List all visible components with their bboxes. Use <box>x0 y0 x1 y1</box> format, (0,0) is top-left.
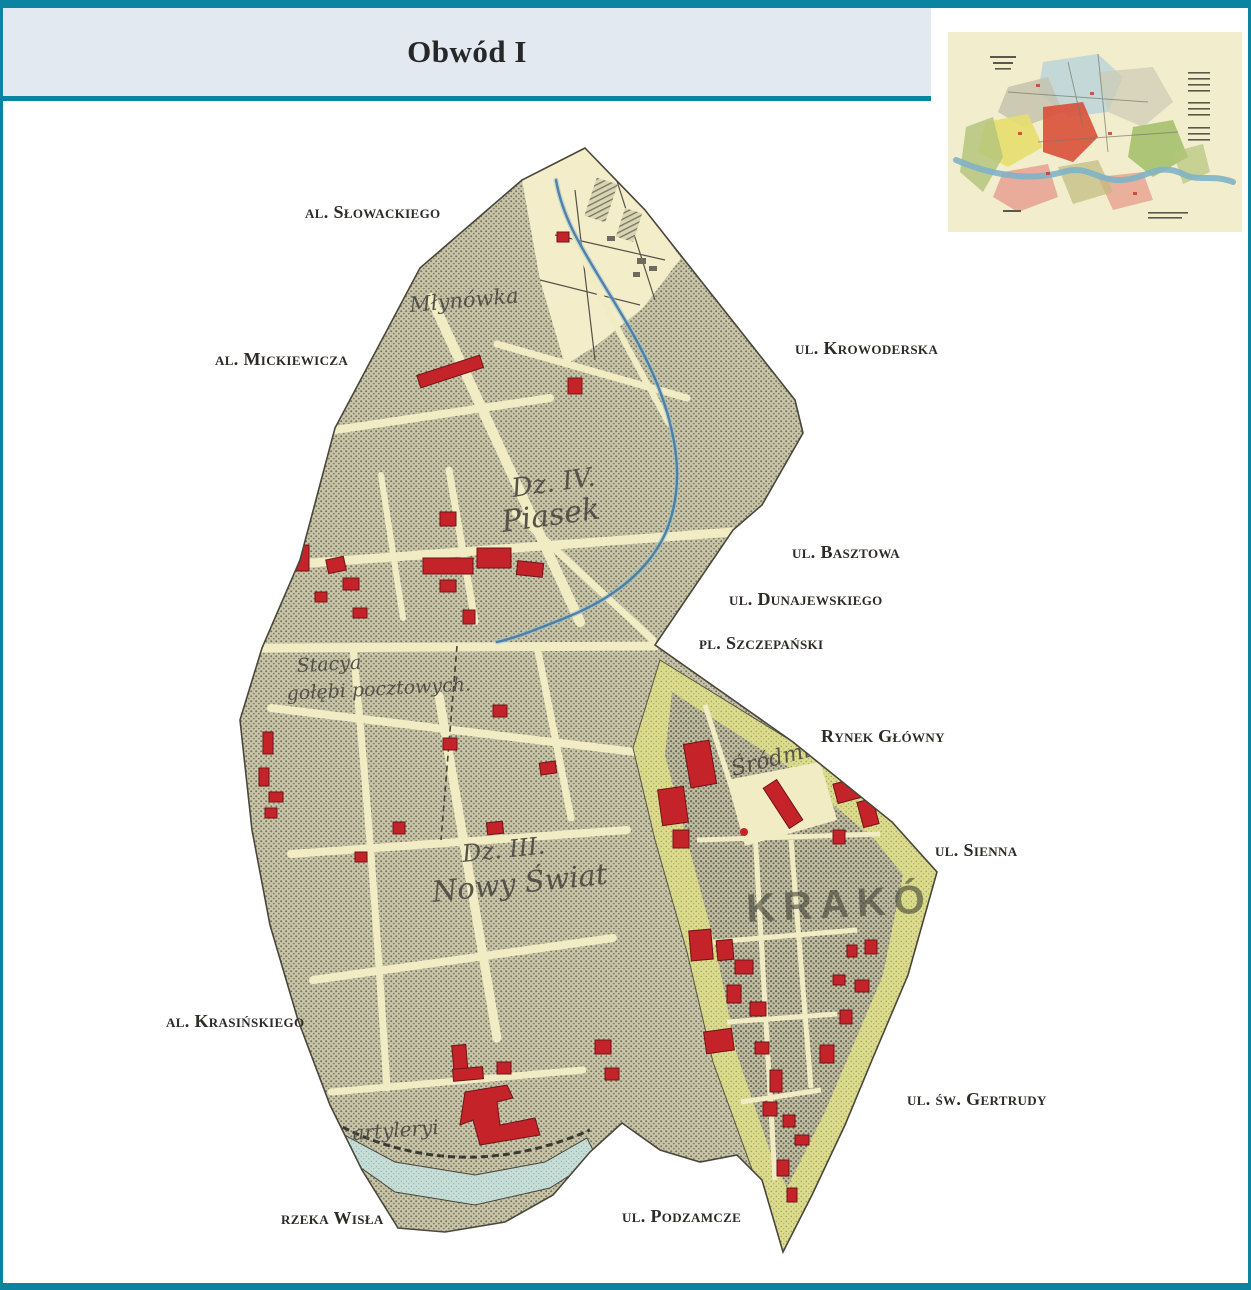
page-border-left <box>0 0 3 1290</box>
street-label-ul-sienna: ul. Sienna <box>935 840 1017 861</box>
street-label-ul-podzamcze: ul. Podzamcze <box>622 1206 741 1227</box>
street-label-al-slowackiego: al. Słowackiego <box>305 202 441 223</box>
street-label-ul-sw-gertrudy: ul. św. Gertrudy <box>907 1089 1047 1110</box>
map-rynek-building <box>740 828 748 836</box>
map-annotation-station-1: Stacya <box>296 652 362 677</box>
district-map: Młynówka Dz. IV. Piasek Stacya gołębi po… <box>235 140 965 1255</box>
page-border-top <box>0 0 1251 8</box>
street-label-rzeka-wisla: rzeka Wisła <box>281 1208 384 1229</box>
street-label-pl-szczepanski: pl. Szczepański <box>699 633 823 654</box>
street-label-al-mickiewicza: al. Mickiewicza <box>215 349 348 370</box>
street-label-al-krasinskiego: al. Krasińskiego <box>166 1011 304 1032</box>
street-label-ul-basztowa: ul. Basztowa <box>792 542 900 563</box>
header: Obwód I <box>3 8 931 96</box>
page-border-bottom <box>0 1283 1251 1290</box>
street-label-ul-krowoderska: ul. Krowoderska <box>795 338 938 359</box>
page-title: Obwód I <box>407 34 527 70</box>
street-label-ul-dunajewskiego: ul. Dunajewskiego <box>729 589 883 610</box>
header-rule <box>3 96 931 101</box>
page: Obwód I <box>0 0 1251 1290</box>
city-overview-thumbnail <box>948 32 1242 232</box>
street-label-rynek-glowny: Rynek Główny <box>821 726 945 747</box>
